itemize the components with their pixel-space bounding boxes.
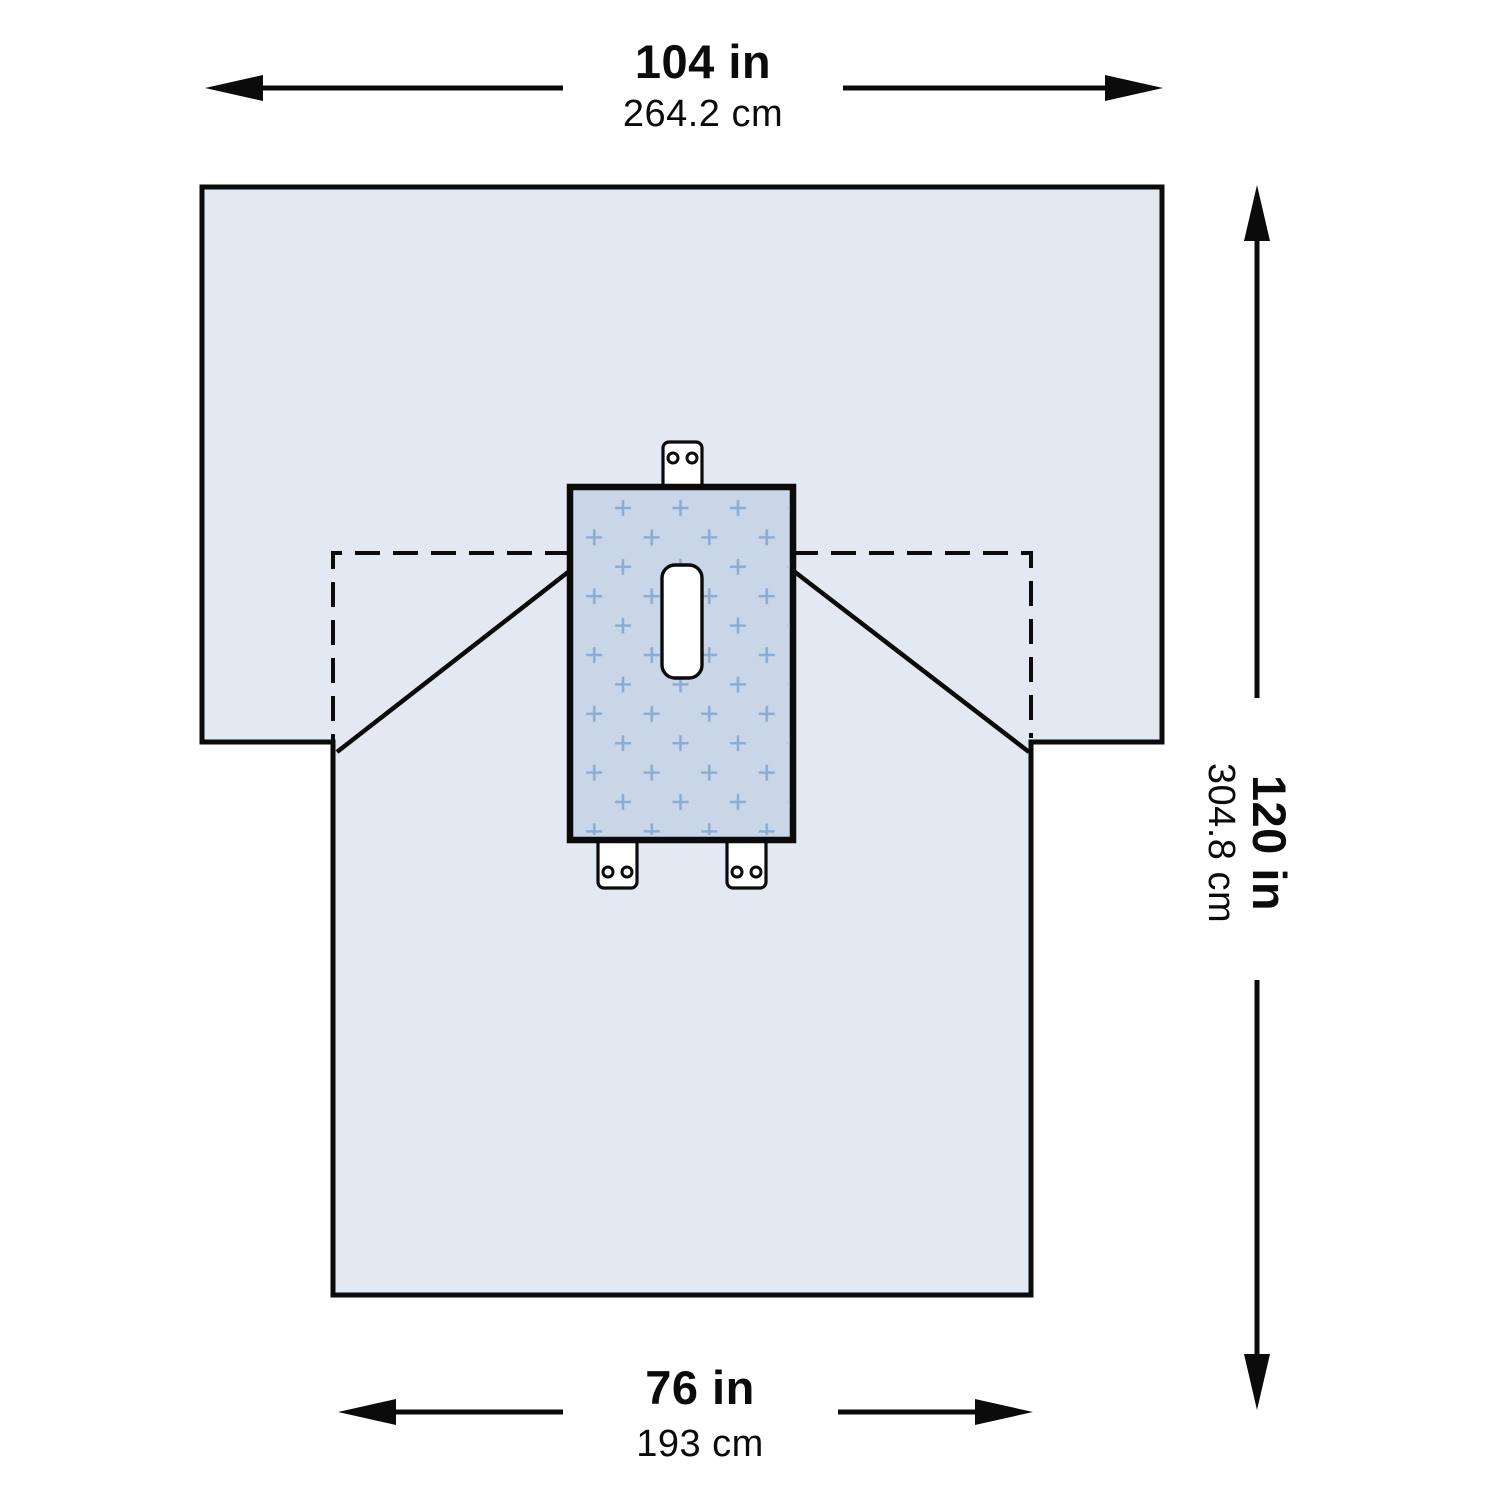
right-dimension-metric: 304.8 cm: [1200, 763, 1242, 923]
drape-dimension-diagram: 104 in 264.2 cm 120 in 304.8 cm 76 in 19…: [0, 0, 1500, 1500]
tab-hole-icon: [687, 453, 697, 463]
tab-hole-icon: [668, 453, 678, 463]
tab-hole-icon: [603, 867, 613, 877]
arrow-right-icon: [1105, 75, 1163, 101]
tape-tab-top: [663, 442, 702, 490]
bottom-dimension-inches: 76 in: [645, 1361, 755, 1414]
tape-tab-shape: [663, 442, 702, 490]
dimension-top-width: 104 in 264.2 cm: [205, 35, 1163, 135]
tape-tab-bottom-left: [598, 838, 637, 888]
dimension-bottom-width: 76 in 193 cm: [338, 1361, 1033, 1465]
arrow-right-icon: [975, 1399, 1033, 1425]
tab-hole-icon: [622, 867, 632, 877]
bottom-dimension-metric: 193 cm: [636, 1423, 764, 1465]
diagram-canvas: 104 in 264.2 cm 120 in 304.8 cm 76 in 19…: [0, 0, 1500, 1500]
top-dimension-metric: 264.2 cm: [623, 93, 783, 135]
fenestration-slot: [662, 565, 702, 678]
tape-tab-bottom-right: [727, 838, 766, 888]
tab-hole-icon: [751, 867, 761, 877]
arrow-left-icon: [205, 75, 263, 101]
top-dimension-inches: 104 in: [635, 35, 771, 88]
tape-tab-shape: [727, 838, 766, 888]
arrow-left-icon: [338, 1399, 396, 1425]
right-dimension-inches: 120 in: [1243, 775, 1296, 911]
arrow-up-icon: [1244, 185, 1270, 241]
tape-tab-shape: [598, 838, 637, 888]
dimension-right-height: 120 in 304.8 cm: [1200, 185, 1296, 1410]
arrow-down-icon: [1244, 1354, 1270, 1410]
tab-hole-icon: [732, 867, 742, 877]
